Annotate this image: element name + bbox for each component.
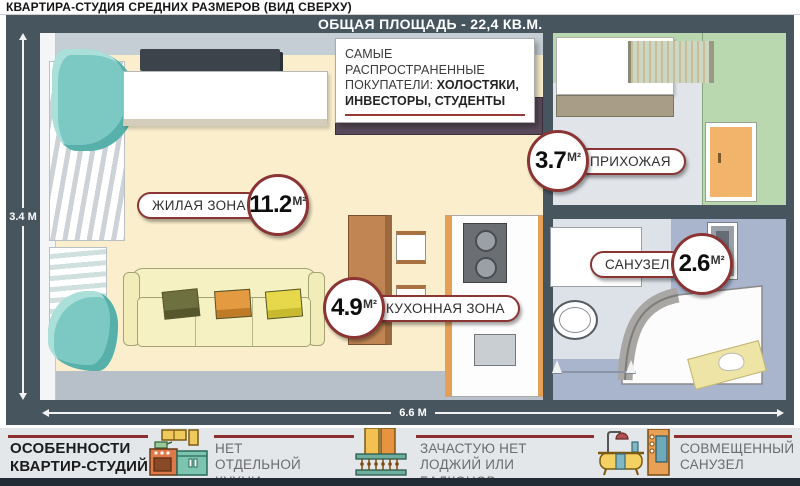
area-pill: ЖИЛАЯ ЗОНА [137,192,261,219]
area-circle: 11.2 М² [247,174,309,236]
tv-panel [140,49,280,71]
entry-door [706,123,756,201]
infographic-canvas: КВАРТИРА-СТУДИЯ СРЕДНИХ РАЗМЕРОВ (ВИД СВ… [0,0,800,486]
bath-towel [718,352,745,372]
buyers-note: САМЫЕ РАСПРОСТРАНЕННЫЕ ПОКУПАТЕЛИ: ХОЛОС… [335,38,535,123]
bath-cone [552,360,562,373]
red-divider [214,435,354,438]
toilet-bowl [559,307,591,333]
buyers-note-text: САМЫЕ РАСПРОСТРАНЕННЫЕ ПОКУПАТЕЛИ: ХОЛОС… [345,47,525,109]
height-value: 3.4 М [9,211,37,223]
features-bar: ОСОБЕННОСТИ КВАРТИР-СТУДИЙ: НЕТ ОТДЕЛЬНО… [0,428,800,478]
sofa-pillow-olive [162,288,201,320]
wardrobe [123,71,328,126]
buyers-note-underline [345,114,525,116]
red-divider [416,435,594,438]
burner [475,230,497,252]
towel-bar [554,371,636,373]
living-area-label: ЖИЛАЯ ЗОНА 11.2 М² [137,174,309,236]
bathtub-icon [594,429,670,477]
hallway-shelf [556,95,674,117]
area-pill: ПРИХОЖАЯ [575,148,686,175]
bar-stool [396,231,426,264]
bottom-bar [0,478,800,486]
area-circle: 2.6 М² [671,233,733,295]
total-area-header: ОБЩАЯ ПЛОЩАДЬ - 22,4 КВ.М. [318,15,542,34]
cooktop [463,223,507,283]
arrow-left-icon [42,409,49,417]
red-divider [674,435,792,438]
feature-text: СОВМЕЩЕННЫЙ САНУЗЕЛ [680,441,798,474]
sofa-pillow-yellow [265,288,303,319]
bath-cone [626,360,636,373]
arrow-up-icon [19,33,27,40]
kitchen-area-label: 4.9 М² КУХОННАЯ ЗОНА [323,277,520,339]
arrow-down-icon [19,393,27,400]
area-pill: КУХОННАЯ ЗОНА [371,295,520,322]
main-title: КВАРТИРА-СТУДИЯ СРЕДНИХ РАЗМЕРОВ (ВИД СВ… [6,0,352,14]
area-circle: 3.7 М² [527,130,589,192]
door-knob [718,153,721,163]
kitchen-icon [148,429,210,477]
toilet [552,300,598,340]
sofa-pillow-orange [214,289,252,319]
burner [475,257,497,279]
interior-wall-horizontal [543,205,786,219]
bathroom-area-label: САНУЗЕЛ 2.6 М² [590,233,733,295]
red-divider [8,435,148,438]
dimension-width: 6.6 М [42,405,784,421]
width-value: 6.6 М [399,407,427,419]
arrow-right-icon [777,409,784,417]
dimension-height: 3.4 М [6,33,40,400]
curtain-bottom [48,291,118,371]
area-circle: 4.9 М² [323,277,385,339]
hallway-area-label: 3.7 М² ПРИХОЖАЯ [527,130,686,192]
balcony-icon [352,428,410,476]
hanger-rail [628,41,714,83]
sofa [123,268,325,354]
features-title: ОСОБЕННОСТИ КВАРТИР-СТУДИЙ: [10,440,153,476]
